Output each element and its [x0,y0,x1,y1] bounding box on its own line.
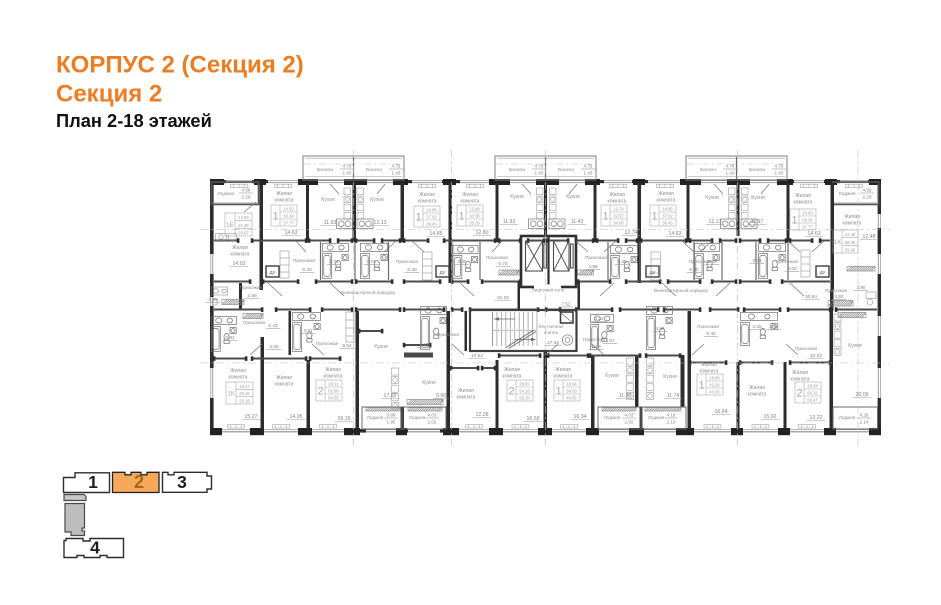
svg-text:2: 2 [508,385,514,397]
svg-text:3.41: 3.41 [225,335,235,341]
svg-text:комната: комната [275,382,294,388]
svg-text:1Б: 1Б [226,222,234,229]
svg-text:Кухня: Кухня [370,197,384,203]
svg-text:Внеквартирный коридор: Внеквартирный коридор [654,287,709,294]
svg-text:2: 2 [134,472,144,492]
svg-text:4.95: 4.95 [588,264,598,270]
svg-text:37.02: 37.02 [662,214,673,219]
svg-text:37.02: 37.02 [426,215,437,220]
svg-text:ДУ: ДУ [650,270,656,275]
svg-text:1: 1 [602,210,608,222]
svg-text:14.93: 14.93 [233,261,246,267]
svg-text:Кухня: Кухня [705,195,719,201]
svg-text:15.92: 15.92 [764,414,777,420]
svg-text:4: 4 [90,538,100,558]
svg-text:5.78: 5.78 [498,261,508,267]
svg-text:комната: комната [794,200,813,206]
svg-text:4.76: 4.76 [392,164,401,169]
svg-text:6.30: 6.30 [689,267,699,273]
svg-text:1.43: 1.43 [343,171,352,176]
svg-text:Жилая: Жилая [749,385,765,391]
svg-text:38.03: 38.03 [566,389,577,394]
svg-text:2.92: 2.92 [769,324,779,330]
svg-text:3.90: 3.90 [857,285,866,290]
svg-text:Внеквартирный коридор: Внеквартирный коридор [341,289,396,296]
svg-text:Жилая: Жилая [232,245,248,251]
svg-text:ДУ: ДУ [440,270,446,275]
svg-text:12.48: 12.48 [845,232,856,237]
svg-text:16.59: 16.59 [527,416,540,422]
svg-text:комната: комната [657,198,676,204]
svg-text:1.43: 1.43 [726,171,735,176]
svg-text:Кухня: Кухня [321,197,335,203]
svg-text:Лоджия: Лоджия [839,191,856,197]
svg-text:6.30: 6.30 [407,267,417,273]
svg-text:1: 1 [651,210,657,222]
svg-text:1.95: 1.95 [387,420,396,425]
svg-text:1: 1 [415,211,421,223]
svg-text:11.36: 11.36 [619,393,632,399]
svg-text:комната: комната [275,198,294,204]
svg-text:14.85: 14.85 [662,207,673,212]
svg-text:Кухня: Кухня [605,373,619,379]
svg-text:Жилая: Жилая [504,367,520,373]
svg-text:План 2-18 этажей: План 2-18 этажей [56,110,212,131]
svg-text:4.76: 4.76 [343,164,352,169]
svg-text:2.29: 2.29 [242,195,251,200]
svg-text:17.93: 17.93 [384,393,397,399]
svg-text:11.93: 11.93 [503,219,516,225]
svg-text:1.67: 1.67 [420,342,429,347]
svg-text:1: 1 [272,210,278,222]
svg-text:12.80: 12.80 [476,230,489,236]
svg-text:комната: комната [229,375,248,381]
svg-text:23.67: 23.67 [238,231,249,236]
svg-text:2.14: 2.14 [860,420,869,425]
svg-text:Прихожая: Прихожая [583,337,606,343]
svg-text:28.87: 28.87 [519,382,530,387]
svg-text:4.03: 4.03 [625,413,634,418]
svg-text:Кухня: Кухня [848,343,862,349]
svg-text:комната: комната [324,374,343,380]
svg-text:29.34: 29.34 [807,384,818,389]
svg-text:15.27: 15.27 [239,384,250,389]
svg-text:4.19: 4.19 [667,413,676,418]
svg-text:Кухня: Кухня [566,194,580,200]
svg-text:9.90: 9.90 [436,393,446,399]
svg-text:4.76: 4.76 [584,164,593,169]
svg-text:комната: комната [457,395,476,401]
svg-text:Жилая: Жилая [325,367,341,373]
svg-text:3.45: 3.45 [617,259,627,265]
svg-text:64.55: 64.55 [328,396,339,401]
svg-text:Прихожая: Прихожая [585,255,608,261]
svg-text:14.85: 14.85 [426,208,437,213]
svg-text:21.38: 21.38 [238,223,249,228]
svg-text:11.74: 11.74 [667,393,680,399]
svg-text:Кухня: Кухня [374,344,388,350]
svg-text:Жилая: Жилая [458,388,474,394]
svg-text:Балкон: Балкон [749,167,765,173]
svg-text:Жилая: Жилая [792,370,808,376]
svg-text:4.25: 4.25 [752,324,762,330]
svg-text:2.56: 2.56 [247,293,257,299]
svg-text:3.83: 3.83 [835,294,844,299]
svg-text:12.13: 12.13 [709,219,722,225]
svg-text:12.28: 12.28 [476,412,489,418]
svg-text:3.45: 3.45 [457,259,467,265]
svg-text:6.30: 6.30 [302,267,312,273]
svg-text:14.63: 14.63 [285,230,298,236]
svg-text:3: 3 [177,472,187,492]
svg-text:Кухня: Кухня [751,195,765,201]
svg-text:комната: комната [231,252,250,258]
svg-text:Лоджия: Лоджия [604,415,621,420]
svg-text:комната: комната [554,374,573,380]
svg-text:10.52: 10.52 [471,353,483,359]
svg-text:16.34: 16.34 [574,414,587,420]
svg-text:Жилая: Жилая [795,193,811,199]
svg-text:20.09: 20.09 [856,392,869,398]
svg-text:58.09: 58.09 [845,240,856,245]
svg-text:Лоджия: Лоджия [648,415,665,420]
svg-text:клетка: клетка [544,330,558,335]
svg-text:4.76: 4.76 [726,164,735,169]
svg-text:4.76: 4.76 [775,164,784,169]
svg-text:7.52: 7.52 [562,302,571,307]
svg-text:Лоджия: Лоджия [218,191,235,197]
svg-text:Балкон: Балкон [558,167,574,173]
svg-text:Балкон: Балкон [366,167,382,173]
svg-text:1.67: 1.67 [605,338,615,344]
svg-text:31.25: 31.25 [497,295,509,301]
svg-text:11.43: 11.43 [571,219,584,225]
svg-text:37.77: 37.77 [802,225,813,230]
svg-text:14.93: 14.93 [238,215,249,220]
svg-text:14.63: 14.63 [808,231,821,237]
svg-text:12.13: 12.13 [374,220,387,226]
svg-text:Жилая: Жилая [462,192,478,198]
svg-text:3.89: 3.89 [208,297,218,303]
svg-text:3.45: 3.45 [707,259,717,265]
svg-text:35.39: 35.39 [469,221,480,226]
svg-text:Секция 2: Секция 2 [56,81,162,108]
svg-text:1.43: 1.43 [584,171,593,176]
svg-text:2.05: 2.05 [269,344,279,350]
svg-text:14.63: 14.63 [283,207,294,212]
svg-text:2.29: 2.29 [863,195,872,200]
svg-text:комната: комната [608,199,627,205]
svg-text:комната: комната [461,199,480,205]
svg-text:29.21: 29.21 [328,382,339,387]
svg-text:Лоджия: Лоджия [409,415,426,420]
svg-text:1К: 1К [834,239,842,246]
svg-text:Прихожая: Прихожая [316,341,339,347]
svg-text:37.77: 37.77 [283,221,294,226]
svg-text:комната: комната [843,221,862,227]
svg-text:КОРПУС 2 (Секция 2): КОРПУС 2 (Секция 2) [56,52,304,79]
svg-text:40.05: 40.05 [566,396,577,401]
svg-text:14.05: 14.05 [290,414,303,420]
svg-text:16.34: 16.34 [566,382,577,387]
svg-text:16.64: 16.64 [715,409,728,415]
svg-text:Жилая: Жилая [844,214,860,220]
svg-text:Жилая: Жилая [609,192,625,198]
svg-text:4.76: 4.76 [535,164,544,169]
svg-text:10.53: 10.53 [810,353,822,359]
svg-text:Прихожая: Прихожая [240,285,263,291]
svg-text:56.20: 56.20 [519,396,530,401]
svg-text:1К: 1К [227,390,235,397]
svg-text:Жилая: Жилая [230,368,246,374]
svg-text:44.30: 44.30 [709,390,720,395]
svg-text:9.48: 9.48 [706,331,716,337]
svg-text:Жилая: Жилая [555,367,571,373]
svg-text:36.34: 36.34 [802,218,813,223]
svg-text:Прихожая: Прихожая [486,255,509,261]
svg-text:16.64: 16.64 [709,376,720,381]
svg-text:1.43: 1.43 [775,171,784,176]
svg-text:ДУ: ДУ [820,270,826,275]
svg-text:комната: комната [418,199,437,205]
svg-text:34.00: 34.00 [613,221,624,226]
svg-text:17.45: 17.45 [547,340,559,346]
svg-text:6.43: 6.43 [268,323,278,329]
svg-text:Жилая: Жилая [276,191,292,197]
svg-text:3.91: 3.91 [303,328,313,334]
svg-text:4.58: 4.58 [242,188,251,193]
svg-text:32.57: 32.57 [613,214,624,219]
svg-text:12.80: 12.80 [469,207,480,212]
svg-text:66.33: 66.33 [807,391,818,396]
svg-text:11.93: 11.93 [324,220,337,226]
svg-text:14.63: 14.63 [669,231,682,237]
svg-text:42.20: 42.20 [709,383,720,388]
svg-text:1.43: 1.43 [535,171,544,176]
svg-text:15.27: 15.27 [245,414,258,420]
svg-text:14.63: 14.63 [802,211,813,216]
svg-text:54.18: 54.18 [519,389,530,394]
svg-text:Прихожая: Прихожая [795,346,818,352]
svg-text:59.60: 59.60 [845,248,856,253]
svg-text:1: 1 [791,214,797,226]
svg-text:3.89: 3.89 [387,413,396,418]
svg-text:2.02: 2.02 [428,420,437,425]
svg-text:Жилая: Жилая [701,362,717,368]
svg-text:Прихожая: Прихожая [697,324,720,330]
svg-text:комната: комната [791,377,810,383]
svg-text:3.74: 3.74 [366,259,376,265]
svg-text:3.74: 3.74 [752,258,762,264]
svg-text:Лоджия: Лоджия [839,415,856,420]
svg-text:9.54: 9.54 [342,343,352,349]
svg-text:комната: комната [700,369,719,375]
svg-text:4.28: 4.28 [860,413,869,418]
svg-text:комната: комната [748,392,767,398]
svg-text:1: 1 [698,379,704,391]
svg-text:Прихожая: Прихожая [293,258,316,264]
svg-text:ДУ: ДУ [270,270,276,275]
svg-text:комната: комната [503,374,522,380]
svg-text:30.54: 30.54 [805,294,817,300]
svg-text:4.34: 4.34 [655,326,665,332]
svg-text:62.60: 62.60 [328,389,339,394]
svg-text:Прихожая: Прихожая [776,259,799,265]
svg-text:Кухня: Кухня [663,374,677,380]
svg-text:12.74: 12.74 [613,207,624,212]
svg-text:13.22: 13.22 [810,415,823,421]
svg-text:15.16: 15.16 [338,416,351,422]
svg-text:33.96: 33.96 [469,214,480,219]
svg-text:14.85: 14.85 [430,231,443,237]
svg-text:Прихожая: Прихожая [437,332,460,338]
svg-text:11.97: 11.97 [751,219,764,225]
svg-text:38.45: 38.45 [426,222,437,227]
svg-text:4.58: 4.58 [863,188,872,193]
svg-text:2: 2 [796,387,802,399]
svg-text:2.02: 2.02 [625,420,634,425]
svg-text:Балкон: Балкон [700,167,716,173]
svg-text:Жилая: Жилая [419,192,435,198]
svg-text:5.99: 5.99 [591,344,601,350]
svg-text:Прихожая: Прихожая [396,259,419,265]
svg-text:1.43: 1.43 [392,171,401,176]
svg-text:25.18: 25.18 [239,391,250,396]
svg-text:Лестничная: Лестничная [538,324,564,329]
svg-text:Балкон: Балкон [317,167,333,173]
svg-text:3.22: 3.22 [594,316,604,322]
svg-text:38.45: 38.45 [662,221,673,226]
svg-text:1: 1 [88,472,98,492]
svg-text:12.74: 12.74 [625,230,638,236]
svg-text:Прихожая: Прихожая [243,320,266,326]
svg-text:3.74: 3.74 [329,259,339,265]
svg-text:6.00: 6.00 [787,266,797,272]
svg-text:Лоджия: Лоджия [367,415,384,420]
svg-text:2.10: 2.10 [667,420,676,425]
svg-text:Жилая: Жилая [658,191,674,197]
svg-text:Жилая: Жилая [276,375,292,381]
svg-text:25.18: 25.18 [239,399,250,404]
svg-text:Балкон: Балкон [509,167,525,173]
svg-text:68.47: 68.47 [807,398,818,403]
svg-text:36.34: 36.34 [283,214,294,219]
svg-text:12.48: 12.48 [863,234,876,240]
svg-text:Кухня: Кухня [510,194,524,200]
svg-text:Кухня: Кухня [422,380,436,386]
svg-text:4.03: 4.03 [428,413,437,418]
svg-text:2: 2 [317,385,323,397]
svg-text:1: 1 [555,385,561,397]
svg-text:Лифтовой холл: Лифтовой холл [532,287,565,293]
svg-text:1: 1 [458,210,464,222]
